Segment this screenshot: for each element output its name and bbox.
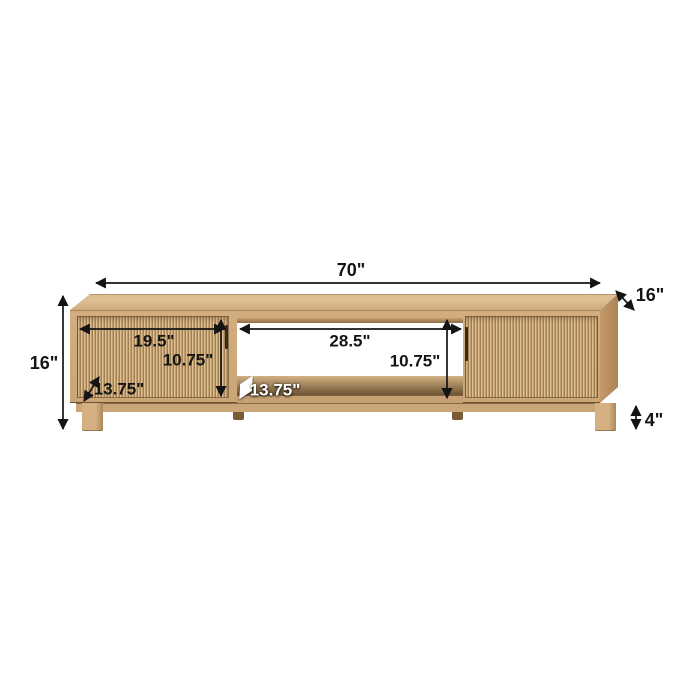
tv-stand-top-surface — [70, 294, 618, 310]
dimension-label-center-width: 28.5" — [329, 333, 370, 350]
dimension-label-overall-height: 16" — [30, 354, 59, 372]
right-door-handle — [465, 327, 468, 361]
right-leg — [595, 403, 616, 431]
dimension-label-left-depth: 13.75" — [94, 381, 145, 398]
dimension-label-depth: 16" — [636, 286, 665, 304]
dimension-label-center-shelf-depth: 13.75" — [250, 382, 301, 399]
back-foot-left — [233, 412, 244, 420]
opening-top-edge — [237, 318, 463, 323]
back-foot-right — [452, 412, 463, 420]
right-fluted-door — [465, 316, 598, 398]
dimension-label-left-door-height: 10.75" — [163, 352, 214, 369]
dimension-diagram: 70" 16" 16" 19.5" 10.75" 13.75" 28.5" 10… — [0, 0, 700, 700]
dimension-label-left-door-width: 19.5" — [133, 333, 174, 350]
dimension-label-leg-height: 4" — [645, 411, 664, 429]
left-leg — [82, 403, 103, 431]
tv-stand-right-side-panel — [600, 294, 618, 403]
dimension-label-overall-width: 70" — [337, 261, 366, 279]
arrow-depth — [616, 291, 634, 310]
tv-stand-front-face — [70, 310, 600, 403]
left-door-handle — [225, 325, 228, 349]
dimension-label-center-height: 10.75" — [390, 353, 441, 370]
bottom-stretcher — [76, 403, 604, 412]
